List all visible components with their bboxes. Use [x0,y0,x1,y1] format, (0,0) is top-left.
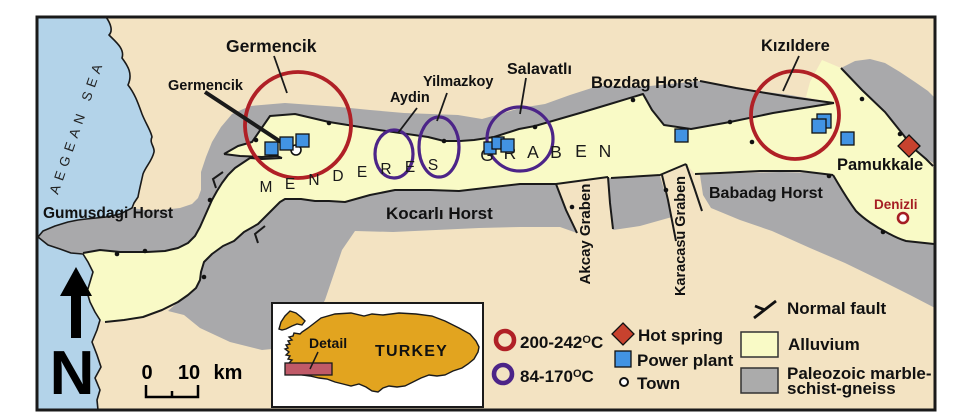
svg-text:N: N [599,141,612,161]
svg-text:Yilmazkoy: Yilmazkoy [423,74,493,90]
svg-text:0: 0 [141,362,152,384]
svg-text:Salavatlı: Salavatlı [507,61,572,78]
svg-text:Kızıldere: Kızıldere [761,37,830,55]
svg-text:E: E [575,141,587,161]
svg-text:Town: Town [637,374,680,393]
svg-text:Akcay Graben: Akcay Graben [577,184,594,285]
svg-text:E: E [405,159,415,176]
svg-text:E: E [285,176,295,193]
svg-text:N: N [50,339,95,408]
svg-text:Normal fault: Normal fault [787,299,887,318]
svg-text:84-170OC: 84-170OC [520,367,594,386]
svg-text:schist-gneiss: schist-gneiss [787,379,896,398]
svg-text:Pamukkale: Pamukkale [837,156,923,174]
svg-text:Denizli: Denizli [874,197,918,212]
svg-text:km: km [214,362,243,384]
svg-text:Babadag Horst: Babadag Horst [709,185,823,202]
svg-text:Alluvium: Alluvium [788,335,860,354]
svg-text:10: 10 [178,362,200,384]
svg-text:N: N [308,172,319,189]
svg-text:Hot spring: Hot spring [638,326,723,345]
svg-text:M: M [260,179,273,196]
svg-text:Karacasu Graben: Karacasu Graben [673,176,689,296]
svg-text:Detail: Detail [309,335,347,351]
svg-text:E: E [357,164,367,181]
svg-text:A: A [527,142,539,162]
svg-text:Aydin: Aydin [390,90,430,106]
svg-text:TURKEY: TURKEY [375,343,448,360]
svg-text:Kocarlı Horst: Kocarlı Horst [386,204,493,223]
svg-text:Gumusdagi Horst: Gumusdagi Horst [43,205,173,222]
svg-text:200-242OC: 200-242OC [520,333,603,352]
svg-text:Germencik: Germencik [226,36,317,56]
svg-text:D: D [332,168,343,185]
svg-text:S: S [428,157,438,174]
svg-text:Power plant: Power plant [637,351,734,370]
svg-text:Bozdag Horst: Bozdag Horst [591,74,699,92]
svg-text:R: R [380,161,391,178]
svg-text:B: B [550,142,562,162]
